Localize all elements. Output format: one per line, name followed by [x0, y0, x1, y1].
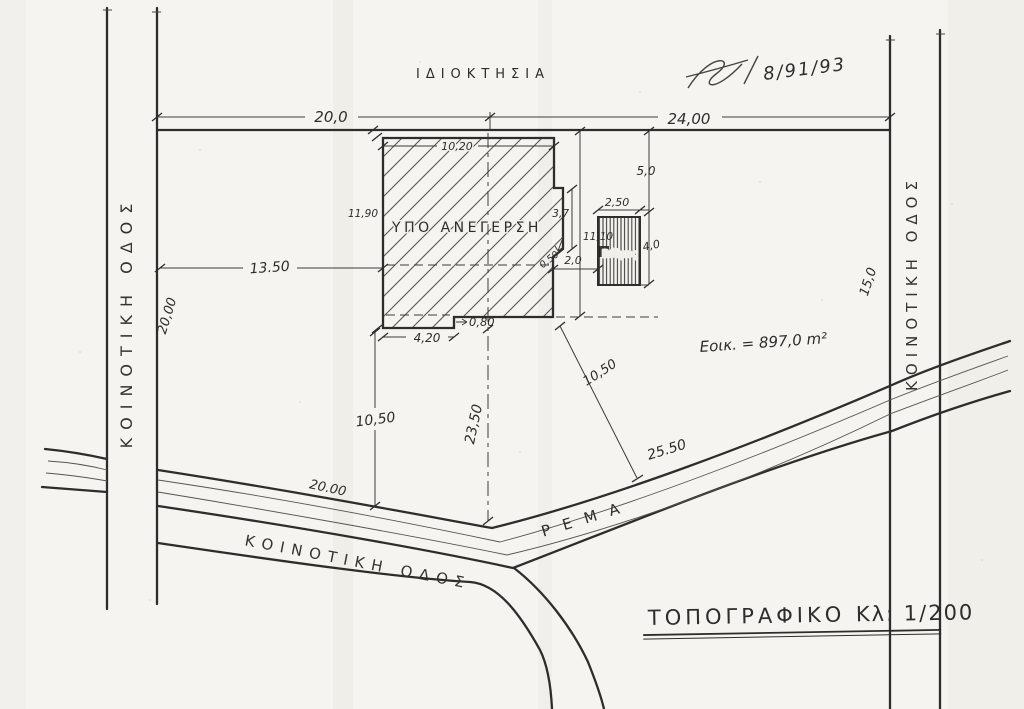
- cesspool-label: Βόθρος: [602, 249, 638, 260]
- drawing-title: ΤΟΠΟΓΡΑΦΙΚΟ: [647, 603, 846, 630]
- dim-cesspool-offset-top: 5,0: [636, 164, 655, 178]
- dim-top-left-frontage: 20,0: [314, 108, 347, 126]
- road-left-label: ΚΟΙΝΟΤΙΚΗ ΟΔΟΣ: [117, 196, 136, 449]
- drawing-scale: Κλ: 1/200: [856, 600, 975, 626]
- survey-sheet: ΚΟΙΝΟΤΙΚΗ ΟΔΟΣ ΚΟΙΝΟΤΙΚΗ ΟΔΟΣ 15,0 20,0 …: [0, 0, 1024, 709]
- dim-building-width: 10,20: [441, 140, 473, 153]
- dim-top-right-frontage: 24,00: [668, 110, 711, 128]
- dim-bottom-left-width: 4,20: [414, 331, 441, 345]
- road-right-label: ΚΟΙΝΟΤΙΚΗ ΟΔΟΣ: [903, 175, 921, 391]
- dim-notch-height: 3,7: [552, 208, 569, 220]
- dim-cesspool-width: 2,50: [605, 196, 630, 209]
- dim-building-height-left: 11,90: [348, 208, 378, 220]
- property-label: ΙΔΙΟΚΤΗΣΙΑ: [416, 67, 550, 82]
- dim-setback-left: 13.50: [249, 259, 290, 278]
- topographic-drawing: ΚΟΙΝΟΤΙΚΗ ΟΔΟΣ ΚΟΙΝΟΤΙΚΗ ΟΔΟΣ 15,0 20,0 …: [0, 0, 1024, 709]
- building-label: ΥΠΟ ΑΝΕΓΕΡΣΗ: [391, 220, 542, 236]
- dim-gap-to-cesspool: 2,0: [564, 254, 582, 267]
